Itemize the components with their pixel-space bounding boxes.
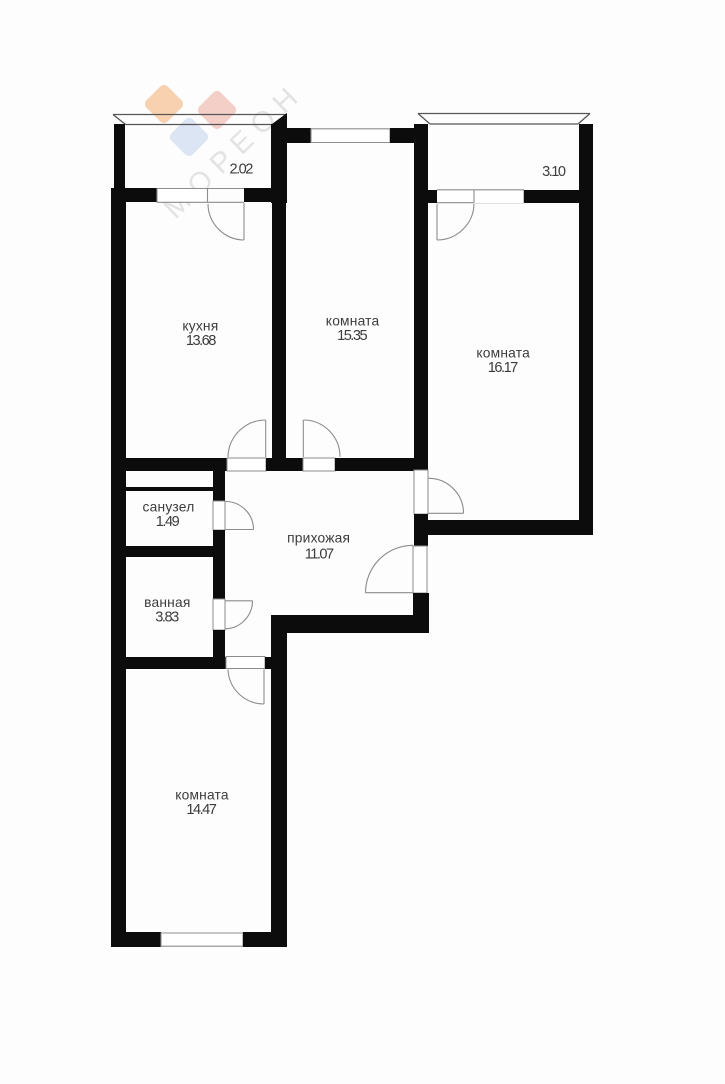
svg-text:16.17: 16.17 — [488, 360, 518, 376]
svg-text:2.02: 2.02 — [229, 162, 253, 178]
svg-text:комната: комната — [476, 346, 530, 361]
svg-text:15.35: 15.35 — [337, 328, 367, 344]
svg-text:ванная: ванная — [144, 595, 190, 610]
svg-text:14.47: 14.47 — [186, 802, 216, 818]
svg-text:1.49: 1.49 — [156, 514, 180, 530]
svg-text:3.83: 3.83 — [155, 610, 179, 626]
svg-text:кухня: кухня — [182, 319, 218, 334]
svg-text:санузел: санузел — [143, 500, 195, 515]
svg-text:комната: комната — [326, 314, 380, 329]
svg-text:13.68: 13.68 — [186, 333, 216, 349]
svg-text:3.10: 3.10 — [542, 164, 566, 180]
svg-text:прихожая: прихожая — [287, 531, 350, 546]
svg-text:11.07: 11.07 — [305, 547, 334, 563]
svg-text:комната: комната — [175, 788, 229, 803]
